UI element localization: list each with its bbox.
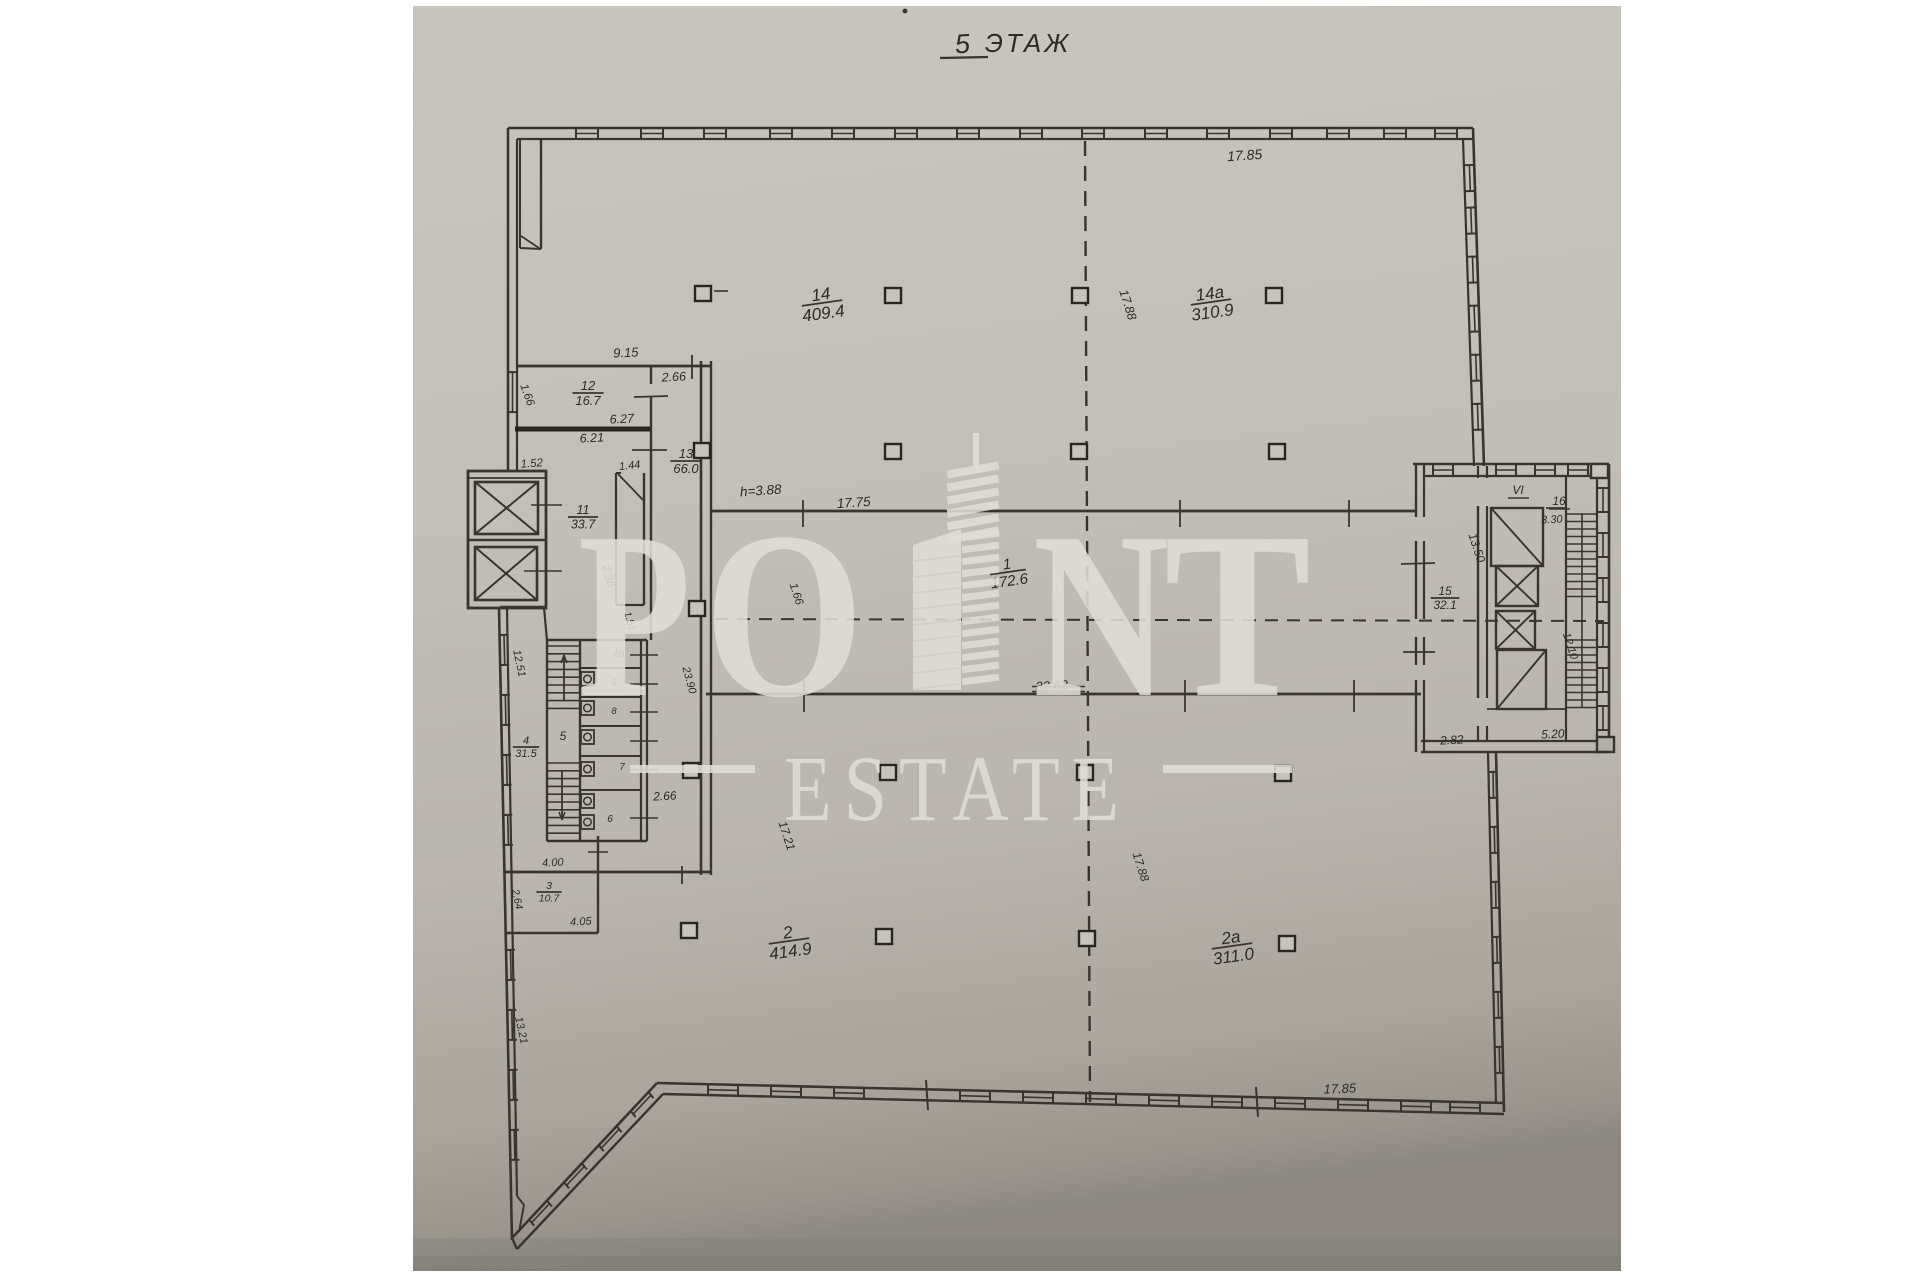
svg-text:VI: VI [1512,483,1524,497]
svg-text:9.15: 9.15 [613,344,640,360]
svg-text:12: 12 [581,378,596,393]
svg-text:17.85: 17.85 [1323,1080,1357,1096]
svg-text:16.7: 16.7 [575,393,601,408]
svg-text:31.5: 31.5 [515,748,537,760]
svg-text:10.7: 10.7 [539,893,561,905]
svg-text:7: 7 [619,762,625,773]
svg-text:2.66: 2.66 [660,369,686,384]
svg-text:2.66: 2.66 [652,788,677,803]
svg-text:32.1: 32.1 [1433,598,1456,612]
svg-text:17.85: 17.85 [1227,146,1263,164]
svg-text:ЭТАЖ: ЭТАЖ [985,28,1071,58]
svg-text:N: N [1033,484,1169,747]
svg-text:3.30: 3.30 [1541,513,1564,526]
svg-text:5.20: 5.20 [1541,726,1565,741]
svg-text:1.52: 1.52 [520,457,544,471]
svg-text:T: T [1164,484,1311,747]
svg-text:6.27: 6.27 [609,411,635,426]
svg-text:4.00: 4.00 [542,856,565,869]
svg-text:P: P [578,484,691,747]
svg-text:16: 16 [1552,494,1566,508]
svg-text:6: 6 [607,814,613,825]
svg-text:5: 5 [560,729,567,743]
svg-text:4: 4 [523,735,529,747]
svg-text:3: 3 [546,880,552,892]
svg-text:ESTATE: ESTATE [784,738,1131,841]
svg-text:13: 13 [679,446,694,461]
svg-text:2.82: 2.82 [1439,732,1464,747]
svg-text:6.21: 6.21 [579,430,604,445]
svg-text:1.44: 1.44 [618,459,641,473]
svg-text:15: 15 [1438,584,1452,598]
svg-text:66.0: 66.0 [673,461,699,476]
svg-text:4.05: 4.05 [570,915,593,928]
svg-text:O: O [704,484,864,747]
